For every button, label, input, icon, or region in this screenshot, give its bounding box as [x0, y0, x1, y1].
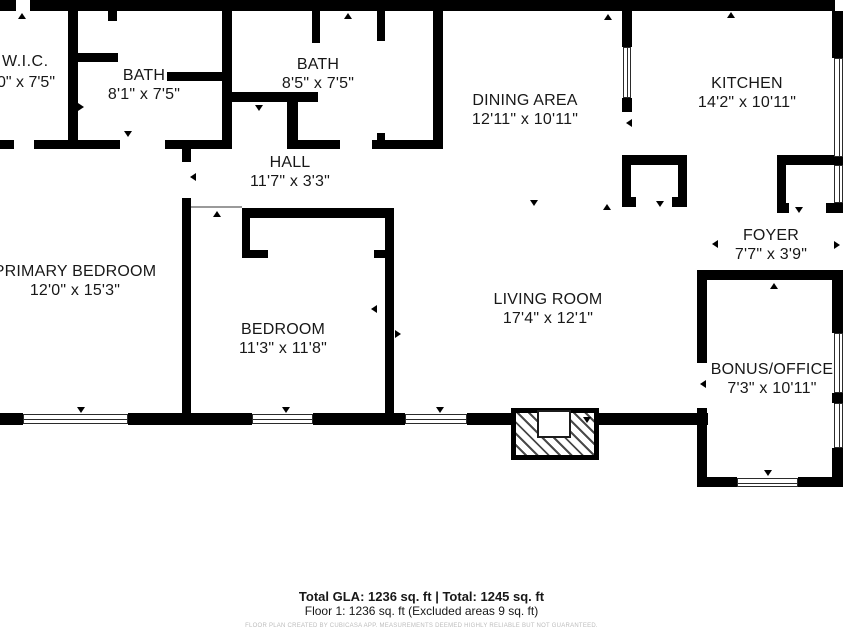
wall-bath2-vestibule-top: [228, 92, 318, 102]
wall-right-top: [832, 11, 843, 58]
bedroom-door-opening: [191, 206, 242, 208]
room-name: HALL: [250, 153, 330, 172]
measure-arrow-icon: [700, 380, 706, 388]
wall-kitchen-divider-lower: [622, 98, 632, 112]
wall-bottom-seg4: [467, 413, 511, 425]
room-label-kitchen: KITCHEN 14'2" x 10'11": [698, 74, 796, 112]
window-bonus-bottom: [737, 478, 798, 487]
room-dims: 8'1" x 7'5": [108, 85, 180, 104]
room-dims: 17'4" x 12'1": [494, 309, 603, 328]
wall-bottom-seg1: [0, 413, 23, 425]
room-label-primary-bedroom: PRIMARY BEDROOM 12'0" x 15'3": [0, 262, 156, 300]
measure-arrow-icon: [727, 12, 735, 18]
wall-bonus-left-upper: [697, 277, 707, 363]
room-dims: 12'0" x 15'3": [0, 281, 156, 300]
wall-shower-stub-top: [108, 11, 117, 21]
measure-arrow-icon: [764, 470, 772, 476]
measure-arrow-icon: [18, 13, 26, 19]
room-dims: 7'3" x 10'11": [711, 379, 833, 398]
fireplace-firebox: [537, 410, 571, 438]
window-bonus-right-upper: [834, 333, 843, 393]
measure-arrow-icon: [712, 240, 718, 248]
wall-hall-top-seg2: [34, 140, 120, 149]
room-name: FOYER: [735, 226, 807, 245]
wall-primary-divider-stub: [182, 148, 191, 162]
wall-closet1-bottom-l: [622, 197, 636, 207]
wall-shower-bottom: [78, 53, 118, 62]
total-gla-text: Total GLA: 1236 sq. ft | Total: 1245 sq.…: [0, 589, 843, 604]
measure-arrow-icon: [371, 305, 377, 313]
room-name: DINING AREA: [472, 91, 578, 110]
room-name: BEDROOM: [239, 320, 327, 339]
room-label-living-room: LIVING ROOM 17'4" x 12'1": [494, 290, 603, 328]
window-bedroom: [252, 414, 313, 424]
wall-closet2-bottom-l: [777, 203, 789, 213]
room-name: LIVING ROOM: [494, 290, 603, 309]
measure-arrow-icon: [213, 211, 221, 217]
room-label-bath-b: BATH 8'5" x 7'5": [282, 55, 354, 93]
room-name: BONUS/OFFICE: [711, 360, 833, 379]
window-bonus-right-lower: [834, 403, 843, 448]
measure-arrow-icon: [604, 14, 612, 20]
wall-top-left: [0, 0, 16, 11]
wall-bedroom-closet-stub-l: [250, 250, 268, 258]
window-closet2-right: [834, 165, 843, 203]
wall-kitchen-divider-upper: [622, 11, 632, 47]
room-label-wic: W.I.C.: [2, 52, 49, 71]
wall-hall-top-seg1: [0, 140, 14, 149]
wall-bath2-vestibule-right: [287, 102, 298, 142]
measure-arrow-icon: [795, 207, 803, 213]
room-name: BATH: [108, 66, 180, 85]
measure-arrow-icon: [77, 407, 85, 413]
wall-closet1-top: [622, 155, 687, 165]
measure-arrow-icon: [436, 407, 444, 413]
room-dims: 7'7" x 3'9": [735, 245, 807, 264]
measure-arrow-icon: [834, 396, 840, 404]
measure-arrow-icon: [70, 70, 76, 78]
measure-arrow-icon: [530, 200, 538, 206]
room-dims: 8'5" x 7'5": [282, 74, 354, 93]
window-kitchen-right: [834, 58, 843, 157]
measure-arrow-icon: [434, 64, 440, 72]
wall-bath2-shower-stub: [312, 11, 320, 43]
wall-bottom-seg5: [599, 413, 708, 425]
wall-bedroom-right: [385, 208, 394, 420]
wall-bedroom-top: [242, 208, 393, 218]
measure-arrow-icon: [656, 201, 664, 207]
floor-breakdown-text: Floor 1: 1236 sq. ft (Excluded areas 9 s…: [0, 604, 843, 618]
measure-arrow-icon: [344, 13, 352, 19]
wall-laundry-left-upper: [377, 11, 385, 41]
room-label-bedroom: BEDROOM 11'3" x 11'8": [239, 320, 327, 358]
measure-arrow-icon: [190, 173, 196, 181]
window-dining-kitchen-divider: [623, 47, 631, 98]
wall-bonus-bottom-right: [798, 477, 843, 487]
measure-arrow-icon: [282, 407, 290, 413]
room-dims: 11'3" x 11'8": [239, 339, 327, 358]
wall-closet1-bottom-r: [672, 197, 687, 207]
room-label-hall: HALL 11'7" x 3'3": [250, 153, 330, 191]
floor-plan-canvas: W.I.C. 10" x 7'5" BATH 8'1" x 7'5" BATH …: [0, 0, 843, 632]
wall-hall-top-seg3: [165, 140, 232, 149]
wall-bonus-right-upper: [832, 280, 843, 333]
room-label-bonus-office: BONUS/OFFICE 7'3" x 10'11": [711, 360, 833, 398]
room-name: BATH: [282, 55, 354, 74]
wall-hall-top-seg4: [287, 140, 340, 149]
window-living-room: [405, 414, 467, 424]
footer-area: Total GLA: 1236 sq. ft | Total: 1245 sq.…: [0, 589, 843, 618]
measure-arrow-icon: [583, 417, 591, 423]
room-dims: 12'11" x 10'11": [472, 110, 578, 129]
wall-hall-top-seg5: [372, 140, 443, 149]
measure-arrow-icon: [626, 119, 632, 127]
measure-arrow-icon: [124, 131, 132, 137]
wall-foyer-bonus-top: [697, 270, 843, 280]
measure-arrow-icon: [255, 105, 263, 111]
room-dims: 14'2" x 10'11": [698, 93, 796, 112]
measure-arrow-icon: [603, 204, 611, 210]
room-dims-wic: 10" x 7'5": [0, 73, 55, 92]
wall-wic-bath-divider: [68, 11, 78, 148]
measure-arrow-icon: [78, 103, 84, 111]
room-name: PRIMARY BEDROOM: [0, 262, 156, 281]
room-label-dining: DINING AREA 12'11" x 10'11": [472, 91, 578, 129]
wall-bedroom-closet-left: [242, 218, 250, 258]
room-dims: 11'7" x 3'3": [250, 172, 330, 191]
window-primary-bedroom: [23, 414, 128, 424]
disclaimer-text: FLOOR PLAN CREATED BY CUBICASA APP. MEAS…: [0, 623, 843, 629]
wall-primary-divider-main: [182, 198, 191, 420]
measure-arrow-icon: [770, 283, 778, 289]
measure-arrow-icon: [834, 241, 840, 249]
measure-arrow-icon: [395, 330, 401, 338]
room-label-bath-a: BATH 8'1" x 7'5": [108, 66, 180, 104]
room-label-foyer: FOYER 7'7" x 3'9": [735, 226, 807, 264]
room-name: KITCHEN: [698, 74, 796, 93]
wall-bedroom-closet-stub-r: [374, 250, 385, 258]
wall-bath-bath-divider: [222, 11, 232, 148]
wall-closet2-bottom-r: [826, 203, 843, 213]
